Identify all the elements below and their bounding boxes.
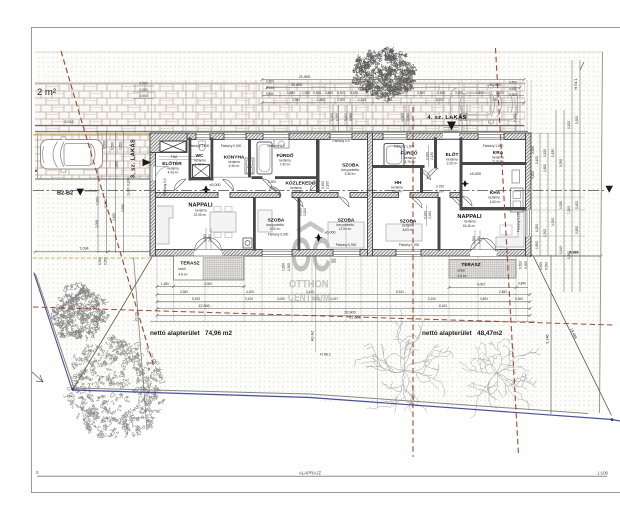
svg-text:0,600: 0,600 xyxy=(406,113,410,121)
svg-text:4,8 m²: 4,8 m² xyxy=(457,274,466,278)
svg-text:nettó alapterület 74,96 m2: nettó alapterület 74,96 m2 xyxy=(150,330,232,337)
svg-text:Párkány 0,9: Párkány 0,9 xyxy=(267,144,284,148)
svg-text:0,300: 0,300 xyxy=(531,146,535,154)
svg-text:1,280: 1,280 xyxy=(161,282,169,286)
svg-text:9,013: 9,013 xyxy=(64,120,73,124)
svg-text:0,900: 0,900 xyxy=(321,181,325,189)
svg-text:0,100: 0,100 xyxy=(437,91,445,95)
svg-text:5,700: 5,700 xyxy=(436,98,444,102)
svg-text:4,76 m²: 4,76 m² xyxy=(405,160,416,164)
svg-text:0,500: 0,500 xyxy=(140,82,148,86)
svg-text:1,630: 1,630 xyxy=(551,149,555,157)
svg-text:Párkány 1,800: Párkány 1,800 xyxy=(189,144,210,148)
svg-text:±0,000: ±0,000 xyxy=(209,183,220,187)
svg-text:8,100: 8,100 xyxy=(439,304,447,308)
svg-text:±0,000: ±0,000 xyxy=(470,172,481,176)
svg-text:2,850: 2,850 xyxy=(499,290,507,294)
svg-text:0,500: 0,500 xyxy=(266,80,274,84)
svg-text:2,600: 2,600 xyxy=(325,91,333,95)
svg-text:5,46 m²: 5,46 m² xyxy=(229,164,240,168)
svg-text:sínkő: sínkő xyxy=(178,267,186,271)
svg-text:Fűtő: Fűtő xyxy=(171,155,178,159)
svg-text:12,500: 12,500 xyxy=(198,304,209,308)
svg-text:0,500: 0,500 xyxy=(509,93,517,97)
svg-text:Párkány 0,9: Párkány 0,9 xyxy=(332,139,349,143)
svg-text:nettó alapterület 48,47m2: nettó alapterület 48,47m2 xyxy=(422,330,503,337)
svg-text:2,900: 2,900 xyxy=(428,211,432,219)
svg-text:0,600: 0,600 xyxy=(344,113,348,121)
svg-text:0,900: 0,900 xyxy=(299,208,303,216)
svg-text:Párkány 0,9: Párkány 0,9 xyxy=(163,178,167,195)
svg-text:1,500: 1,500 xyxy=(472,236,476,244)
svg-text:9,350: 9,350 xyxy=(559,201,563,209)
svg-text:1,500: 1,500 xyxy=(543,229,547,237)
svg-text:B2-B2: B2-B2 xyxy=(57,191,73,197)
svg-text:9,00 m²: 9,00 m² xyxy=(270,227,281,231)
svg-text:0,100: 0,100 xyxy=(535,156,539,164)
svg-text:H 06.1: H 06.1 xyxy=(320,353,331,357)
svg-text:5,350: 5,350 xyxy=(559,159,563,167)
svg-text:3,64 m²: 3,64 m² xyxy=(392,189,403,193)
svg-text:0,150: 0,150 xyxy=(543,149,547,157)
svg-text:1:100: 1:100 xyxy=(597,471,609,476)
svg-text:7,209: 7,209 xyxy=(95,197,99,205)
svg-text:6,500: 6,500 xyxy=(111,142,115,150)
svg-text:Párkány 0,950: Párkány 0,950 xyxy=(517,211,521,232)
svg-text:4,800: 4,800 xyxy=(480,297,488,301)
svg-text:3,000: 3,000 xyxy=(277,297,285,301)
svg-text:8,63 m²: 8,63 m² xyxy=(403,228,414,232)
svg-text:0,100: 0,100 xyxy=(428,297,436,301)
svg-text:0,500: 0,500 xyxy=(545,262,549,270)
svg-text:0,508: 0,508 xyxy=(103,141,107,149)
svg-text:Párkány 1,800: Párkány 1,800 xyxy=(394,145,415,149)
svg-text:0,500: 0,500 xyxy=(140,88,148,92)
svg-text:21,900: 21,900 xyxy=(299,75,310,79)
svg-text:7,40 m²: 7,40 m² xyxy=(280,163,291,167)
svg-text:kerámia: kerámia xyxy=(464,219,476,223)
svg-text:4,000: 4,000 xyxy=(477,282,485,286)
svg-text:0,900: 0,900 xyxy=(424,211,428,219)
svg-text:1,200: 1,200 xyxy=(282,263,286,271)
svg-text:5,550: 5,550 xyxy=(121,204,125,212)
svg-text:4,300: 4,300 xyxy=(551,218,555,226)
svg-text:A2-A2: A2-A2 xyxy=(311,331,315,341)
svg-text:Párkány 0,900: Párkány 0,900 xyxy=(268,232,289,236)
svg-text:CENTRUM: CENTRUM xyxy=(288,292,330,304)
svg-text:4,989: 4,989 xyxy=(569,250,578,254)
svg-text:4,200: 4,200 xyxy=(246,290,254,294)
svg-text:TERASZ: TERASZ xyxy=(461,262,480,268)
svg-text:0,100: 0,100 xyxy=(567,121,571,129)
svg-text:2,100: 2,100 xyxy=(436,190,444,194)
svg-text:0,500: 0,500 xyxy=(266,92,274,96)
svg-text:0,100: 0,100 xyxy=(337,91,345,95)
svg-text:0,500: 0,500 xyxy=(524,261,528,269)
svg-text:7,660: 7,660 xyxy=(115,161,119,169)
svg-text:ALAPRAJZ: ALAPRAJZ xyxy=(299,471,322,476)
svg-text:1,500: 1,500 xyxy=(287,263,291,271)
svg-text:0,840: 0,840 xyxy=(518,281,526,285)
svg-text:Párkány 0,900: Párkány 0,900 xyxy=(336,243,357,247)
svg-text:TERASZ: TERASZ xyxy=(180,260,199,266)
svg-text:2,400: 2,400 xyxy=(127,187,131,195)
svg-text:1,000: 1,000 xyxy=(302,91,310,95)
svg-text:1,200: 1,200 xyxy=(535,224,539,232)
svg-text:Párkány 0,900: Párkány 0,900 xyxy=(399,243,420,247)
svg-text:4,100: 4,100 xyxy=(112,213,116,221)
svg-text:20,900: 20,900 xyxy=(344,311,355,315)
svg-text:2,950: 2,950 xyxy=(292,98,300,102)
svg-text:3,200: 3,200 xyxy=(531,171,535,179)
svg-text:2,05 m²: 2,05 m² xyxy=(447,161,458,165)
svg-text:4,047: 4,047 xyxy=(330,297,338,301)
svg-text:8,511: 8,511 xyxy=(396,290,404,294)
svg-text:8,100: 8,100 xyxy=(350,91,358,95)
svg-text:2 m²: 2 m² xyxy=(37,87,56,98)
svg-text:3,260: 3,260 xyxy=(417,91,425,95)
svg-text:OTTHON: OTTHON xyxy=(289,278,329,290)
svg-text:9,146: 9,146 xyxy=(546,334,550,343)
svg-text:12,54 m²: 12,54 m² xyxy=(339,227,352,231)
svg-text:1,900: 1,900 xyxy=(336,113,340,121)
svg-text:0,500: 0,500 xyxy=(140,94,148,98)
svg-text:0,750: 0,750 xyxy=(436,184,444,188)
svg-text:kerámia: kerámia xyxy=(488,195,500,199)
svg-text:7,205: 7,205 xyxy=(567,206,571,214)
svg-text:18,46 m²: 18,46 m² xyxy=(463,224,476,228)
svg-text:Párkány 1,800: Párkány 1,800 xyxy=(483,144,504,148)
svg-text:0,100: 0,100 xyxy=(313,91,321,95)
svg-text:0,600: 0,600 xyxy=(401,113,405,121)
svg-text:sínkő: sínkő xyxy=(457,268,465,272)
svg-text:kerámia: kerámia xyxy=(195,208,207,212)
svg-text:2,850: 2,850 xyxy=(575,226,579,234)
svg-text:3,200: 3,200 xyxy=(455,91,463,95)
svg-text:7,034: 7,034 xyxy=(79,246,88,250)
svg-text:±0,000: ±0,000 xyxy=(324,231,335,235)
svg-text:4,43 m²: 4,43 m² xyxy=(168,170,179,174)
svg-text:1,600: 1,600 xyxy=(543,164,547,172)
svg-text:5,253: 5,253 xyxy=(192,297,200,301)
svg-text:1,200: 1,200 xyxy=(330,113,334,121)
svg-text:0,600: 0,600 xyxy=(349,113,353,121)
svg-text:1,43 m²: 1,43 m² xyxy=(195,163,206,167)
svg-text:2,130: 2,130 xyxy=(430,152,434,160)
svg-text:0,500: 0,500 xyxy=(575,116,579,124)
svg-text:0,100: 0,100 xyxy=(245,297,253,301)
svg-text:2,100: 2,100 xyxy=(326,181,330,189)
svg-text:20,900: 20,900 xyxy=(291,83,302,87)
svg-text:2,058: 2,058 xyxy=(95,220,99,228)
svg-text:H 04.1: H 04.1 xyxy=(574,79,578,90)
svg-text:3,350: 3,350 xyxy=(180,290,188,294)
svg-text:0,900: 0,900 xyxy=(426,152,430,160)
svg-text:1,600: 1,600 xyxy=(287,91,295,95)
svg-text:2,100: 2,100 xyxy=(303,208,307,216)
svg-text:2,205: 2,205 xyxy=(337,98,345,102)
svg-text:0,500: 0,500 xyxy=(266,86,274,90)
svg-text:0,500: 0,500 xyxy=(519,261,523,269)
svg-text:1,650: 1,650 xyxy=(119,142,123,150)
svg-text:0,500: 0,500 xyxy=(509,81,517,85)
svg-text:0,100: 0,100 xyxy=(575,201,579,209)
svg-text:22,95 m²: 22,95 m² xyxy=(194,213,207,217)
svg-text:1,850: 1,850 xyxy=(535,241,539,249)
svg-text:3. sz. LAKÁS: 3. sz. LAKÁS xyxy=(130,139,137,178)
svg-text:4,80 m²: 4,80 m² xyxy=(490,200,501,204)
svg-text:4,8 m²: 4,8 m² xyxy=(178,273,187,277)
svg-text:9,36 m²: 9,36 m² xyxy=(345,172,356,176)
svg-text:0,300: 0,300 xyxy=(515,297,523,301)
svg-text:0,940: 0,940 xyxy=(559,246,563,254)
svg-text:1,315: 1,315 xyxy=(358,98,366,102)
svg-text:Párkány 0,900: Párkány 0,900 xyxy=(221,144,242,148)
svg-text:1,900: 1,900 xyxy=(317,98,325,102)
svg-text:4,000: 4,000 xyxy=(204,282,212,286)
